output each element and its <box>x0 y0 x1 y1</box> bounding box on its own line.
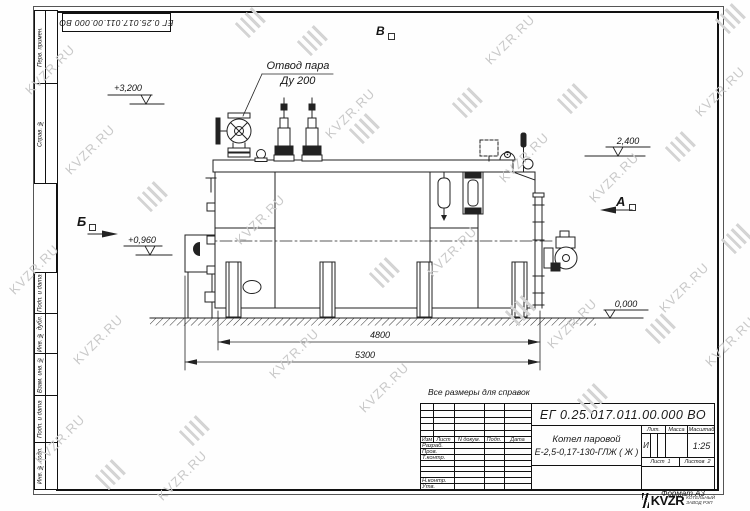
front-wall-fittings <box>205 178 216 302</box>
steam-outlet-valve <box>216 113 251 157</box>
view-label-a: А <box>616 194 625 209</box>
view-label-v: В <box>376 24 385 38</box>
view-rotation-mark-a <box>629 204 636 211</box>
boiler-shell <box>215 172 535 308</box>
elevation-label-0000: 0,000 <box>604 299 648 309</box>
elevation-label-0960: +0,960 <box>121 235 163 245</box>
elevation-label-2400: 2,400 <box>606 136 650 146</box>
dimension-5300: 5300 <box>335 350 395 360</box>
safety-valve-1 <box>274 98 294 161</box>
dome-valve <box>500 152 515 161</box>
callout-dn200: Ду 200 <box>262 75 334 87</box>
reserved-nozzle <box>480 140 498 156</box>
boiler-side-view-drawing <box>0 0 750 500</box>
format-label: Формат А3 <box>648 489 718 498</box>
callout-steam-outlet: Отвод пара <box>262 60 334 72</box>
rear-pump-unit <box>544 231 577 271</box>
ground-hatch <box>150 319 596 326</box>
burner-box <box>185 235 215 317</box>
elevation-label-3200: +3,200 <box>106 83 150 93</box>
view-rotation-mark-b <box>89 224 96 231</box>
view-label-b: Б <box>77 214 86 229</box>
reference-note: Все размеры для справок <box>428 387 530 397</box>
drum-small-valve <box>255 150 267 162</box>
view-rotation-mark-v <box>388 33 395 40</box>
drawing-sheet: { "stamp": { "doc_number": "ЕГ 0.25.017.… <box>0 0 750 500</box>
safety-valve-2 <box>302 98 322 161</box>
level-rod <box>521 133 533 172</box>
manhole <box>243 281 261 294</box>
dimension-4800: 4800 <box>350 330 410 340</box>
water-level-gauge-2 <box>463 172 483 214</box>
rear-flange <box>533 180 544 308</box>
